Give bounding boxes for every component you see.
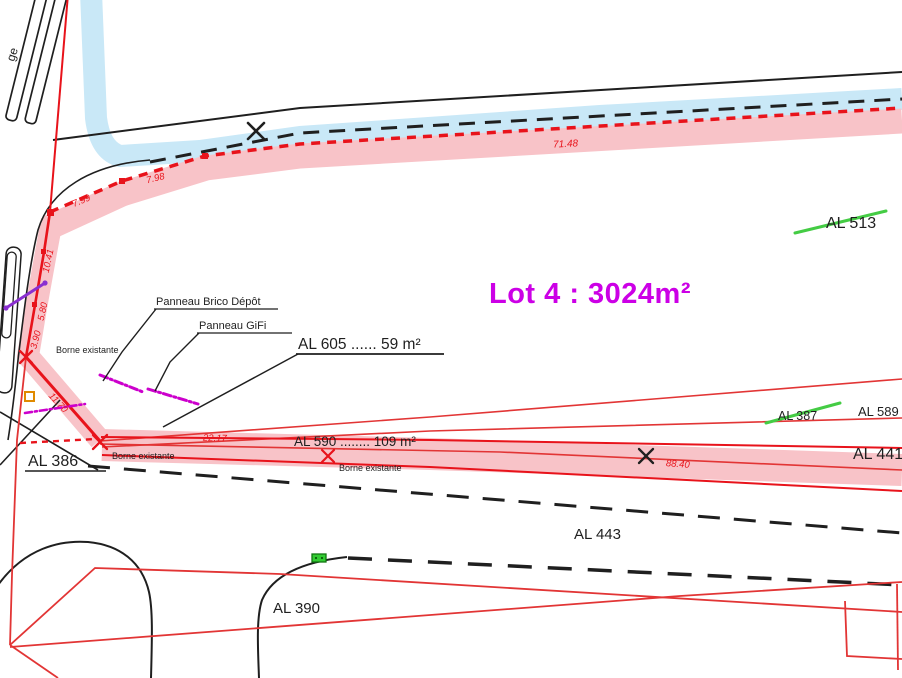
annotation-borne-existante-2: Borne existante: [112, 451, 175, 461]
red-line-bottom-c: [10, 645, 58, 678]
annotation-panneau-gifi: Panneau GiFi: [199, 320, 266, 332]
red-line-right-edge: [897, 584, 898, 670]
boundary-vertex-marker: [119, 178, 125, 184]
boundary-vertex-marker: [202, 153, 208, 159]
red-line-bottom-b: [10, 582, 902, 647]
parcel-label-al589: AL 589: [858, 404, 899, 419]
servitude-endpoint: [42, 280, 47, 285]
symbol-layer: [3, 280, 326, 562]
green-marker-dot: [321, 557, 323, 559]
pink-band-top: [48, 121, 902, 228]
dimension-71-48: 71.48: [553, 138, 579, 150]
red-dashed-segment-left: [20, 439, 96, 443]
lot-area-label: Lot 4 : 3024m²: [489, 278, 691, 310]
leader-al605: [163, 354, 298, 427]
parcel-label-al387: AL 387: [778, 409, 817, 423]
cadastral-plan-viewport: ge Lot 4 : 3024m² AL 513 AL 605 ...... 5…: [0, 0, 902, 678]
annotation-borne-existante-3: Borne existante: [339, 463, 402, 473]
parcel-label-al386: AL 386: [28, 453, 78, 470]
struck-parcel-layer: [766, 211, 886, 423]
parcel-label-al443: AL 443: [574, 526, 621, 543]
dimension-22-17: 22.17: [202, 433, 228, 445]
parcel-label-al513: AL 513: [826, 215, 876, 232]
cadastral-plan-drawing: ge Lot 4 : 3024m² AL 513 AL 605 ...... 5…: [0, 0, 902, 678]
dimension-88-40: 88.40: [666, 458, 691, 471]
boundary-vertex-marker: [32, 302, 37, 307]
street-name-fragment: ge: [4, 46, 22, 63]
parcel-label-al605: AL 605 ...... 59 m²: [298, 336, 421, 353]
parcel-label-al390: AL 390: [273, 600, 320, 617]
annotation-borne-existante-1: Borne existante: [56, 345, 119, 355]
road-axis-bottom-dashed: [348, 558, 902, 585]
green-marker-dot: [315, 557, 317, 559]
leader-panneau-gifi: [155, 333, 199, 391]
pink-band-middle: [102, 445, 902, 470]
panneau-mark-brico: [100, 375, 143, 392]
red-line-left-vertical: [10, 357, 26, 645]
kerb-curve-bottom-left: [0, 542, 152, 678]
orange-square-symbol: [25, 392, 34, 401]
parcel-label-al441: AL 441: [853, 446, 902, 463]
green-marker-symbol: [312, 554, 326, 562]
servitude-endpoint: [3, 305, 8, 310]
parcel-label-al590: AL 590 ........ 109 m²: [294, 434, 416, 449]
boundary-vertex-marker: [47, 209, 54, 216]
annotation-panneau-brico: Panneau Brico Dépôt: [156, 296, 261, 308]
